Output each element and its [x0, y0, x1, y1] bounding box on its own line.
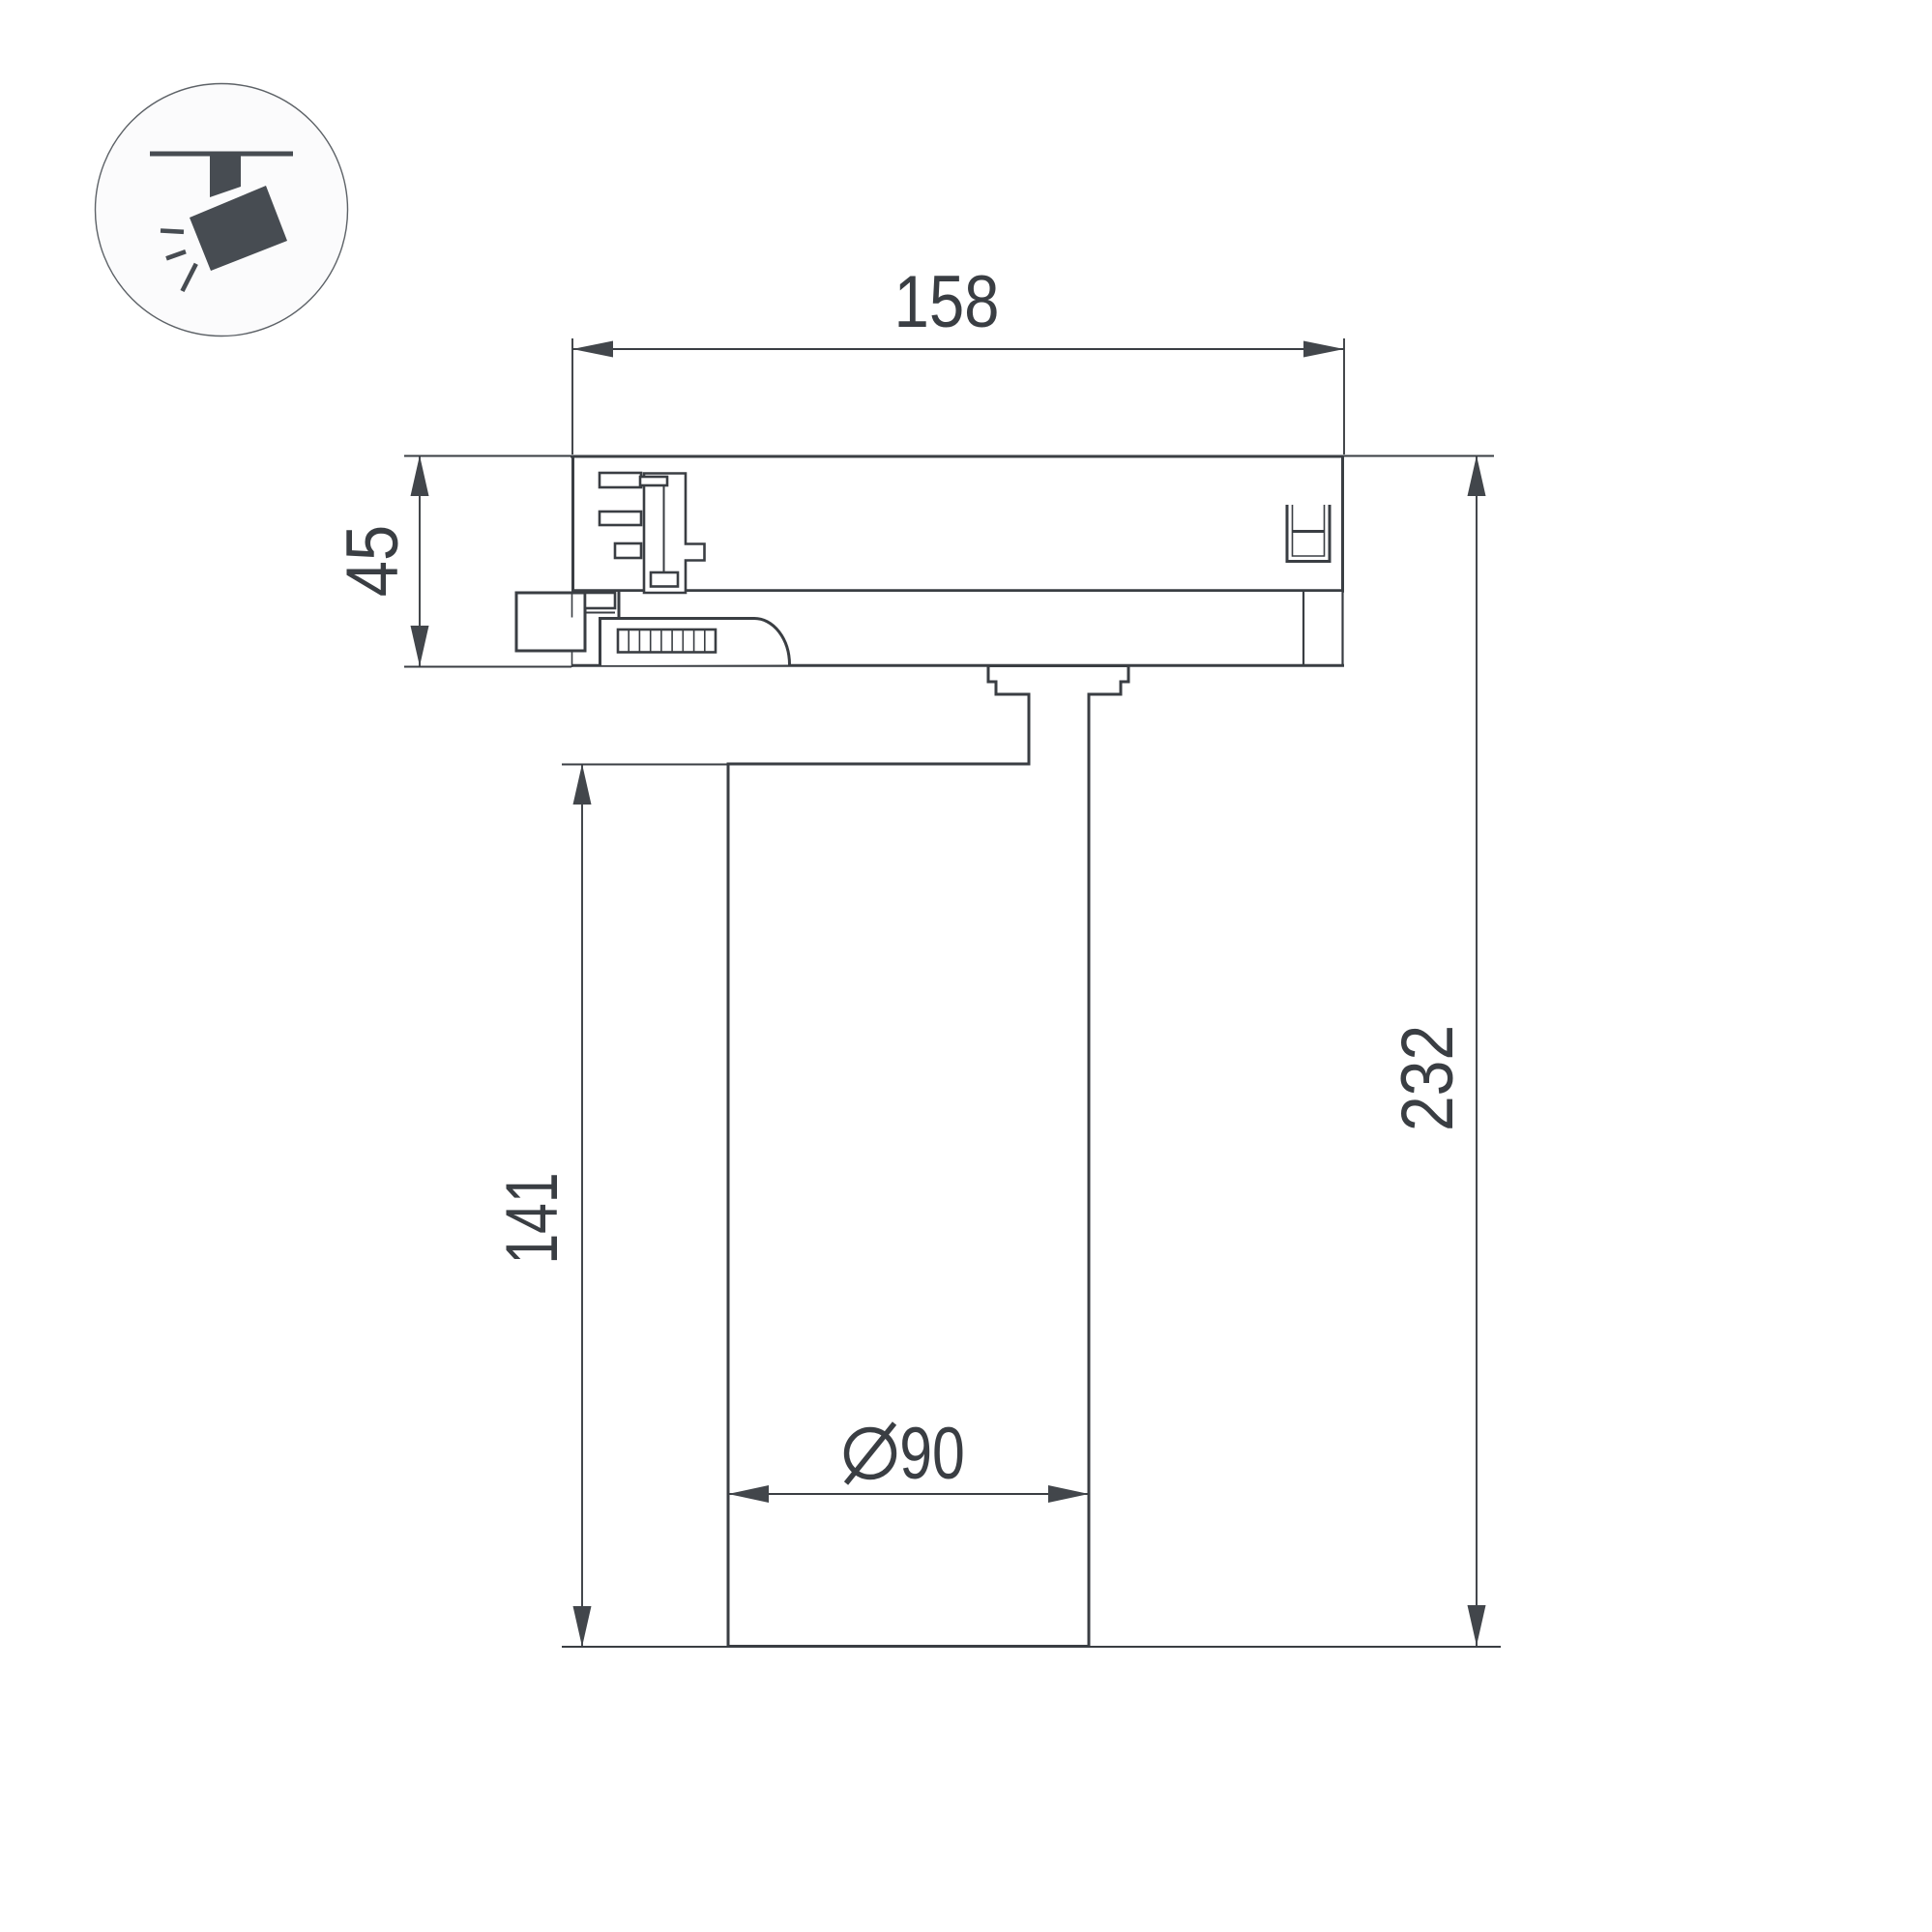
svg-text:158: 158	[893, 261, 999, 343]
svg-text:45: 45	[332, 525, 414, 597]
svg-text:90: 90	[899, 1413, 965, 1495]
svg-text:141: 141	[491, 1172, 573, 1264]
svg-text:232: 232	[1388, 1025, 1469, 1131]
